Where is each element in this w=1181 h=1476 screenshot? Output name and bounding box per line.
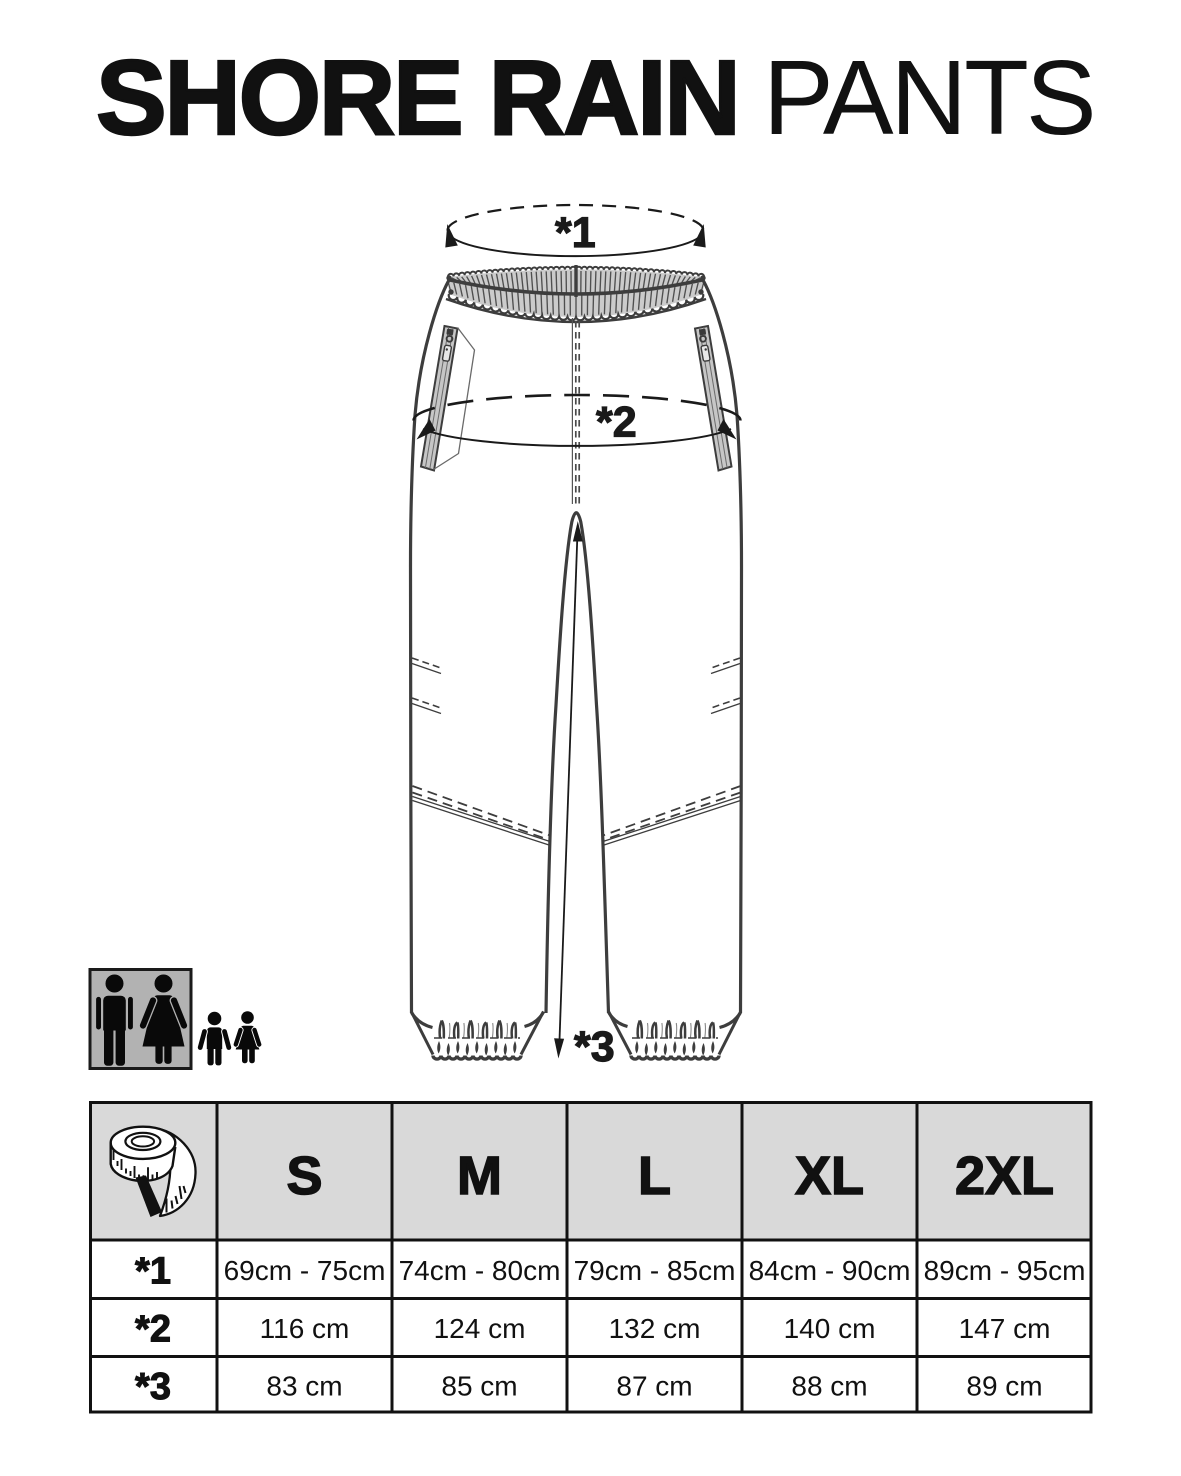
svg-text:PANTS: PANTS — [763, 39, 1094, 157]
svg-text:*1: *1 — [135, 1251, 171, 1293]
svg-text:*3: *3 — [574, 1023, 615, 1071]
svg-text:124 cm: 124 cm — [434, 1313, 526, 1344]
svg-text:*1: *1 — [555, 209, 596, 257]
svg-text:74cm - 80cm: 74cm - 80cm — [399, 1255, 561, 1286]
svg-text:116 cm: 116 cm — [260, 1313, 350, 1344]
svg-text:L: L — [638, 1146, 671, 1206]
svg-text:69cm - 75cm: 69cm - 75cm — [224, 1255, 386, 1286]
svg-text:*3: *3 — [135, 1366, 171, 1408]
svg-text:89 cm: 89 cm — [966, 1371, 1042, 1402]
svg-text:XL: XL — [795, 1146, 864, 1206]
svg-text:SHORE RAIN: SHORE RAIN — [96, 39, 739, 157]
svg-text:140 cm: 140 cm — [784, 1313, 876, 1344]
svg-text:88 cm: 88 cm — [791, 1371, 867, 1402]
svg-text:89cm - 95cm: 89cm - 95cm — [924, 1255, 1086, 1286]
svg-text:87 cm: 87 cm — [616, 1371, 692, 1402]
svg-text:84cm - 90cm: 84cm - 90cm — [749, 1255, 911, 1286]
svg-text:85 cm: 85 cm — [441, 1371, 517, 1402]
svg-text:*2: *2 — [135, 1309, 171, 1351]
svg-text:132 cm: 132 cm — [609, 1313, 701, 1344]
svg-text:M: M — [457, 1146, 502, 1206]
svg-text:S: S — [286, 1146, 322, 1206]
svg-text:2XL: 2XL — [955, 1146, 1054, 1206]
svg-text:*2: *2 — [596, 399, 637, 447]
svg-text:147 cm: 147 cm — [959, 1313, 1051, 1344]
svg-text:79cm - 85cm: 79cm - 85cm — [574, 1255, 736, 1286]
svg-text:83 cm: 83 cm — [266, 1371, 342, 1402]
